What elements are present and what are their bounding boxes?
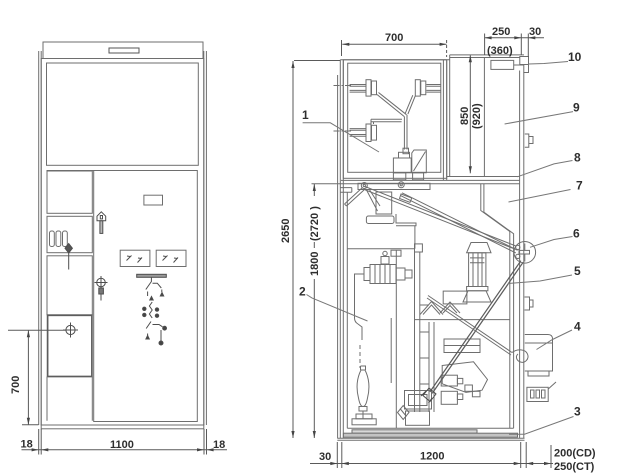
svg-text:9: 9 [573,101,580,115]
svg-text:6: 6 [573,227,580,241]
svg-text:1200: 1200 [420,451,444,463]
svg-text:(2720 ): (2720 ) [309,206,321,241]
svg-text:850: 850 [459,107,471,125]
svg-text:5: 5 [574,264,581,278]
svg-text:1: 1 [302,108,309,122]
svg-text:(920): (920) [471,103,483,129]
svg-text:30: 30 [529,26,541,38]
svg-text:30: 30 [319,451,331,463]
svg-text:2: 2 [299,285,306,299]
svg-text:250: 250 [492,26,510,38]
svg-text:2650: 2650 [280,219,292,243]
svg-text:1100: 1100 [110,439,134,451]
svg-text:250(CT): 250(CT) [554,461,595,473]
svg-text:18: 18 [21,439,33,451]
svg-text:8: 8 [574,151,581,165]
svg-text:(360): (360) [487,45,513,57]
svg-text:18: 18 [213,439,225,451]
svg-text:4: 4 [574,320,581,334]
svg-text:700: 700 [10,376,22,394]
svg-text:10: 10 [568,50,582,64]
svg-text:7: 7 [576,179,583,193]
svg-text:3: 3 [574,405,581,419]
svg-text:1800: 1800 [309,252,321,276]
svg-text:200(CD): 200(CD) [554,448,596,460]
svg-text:700: 700 [385,32,403,44]
